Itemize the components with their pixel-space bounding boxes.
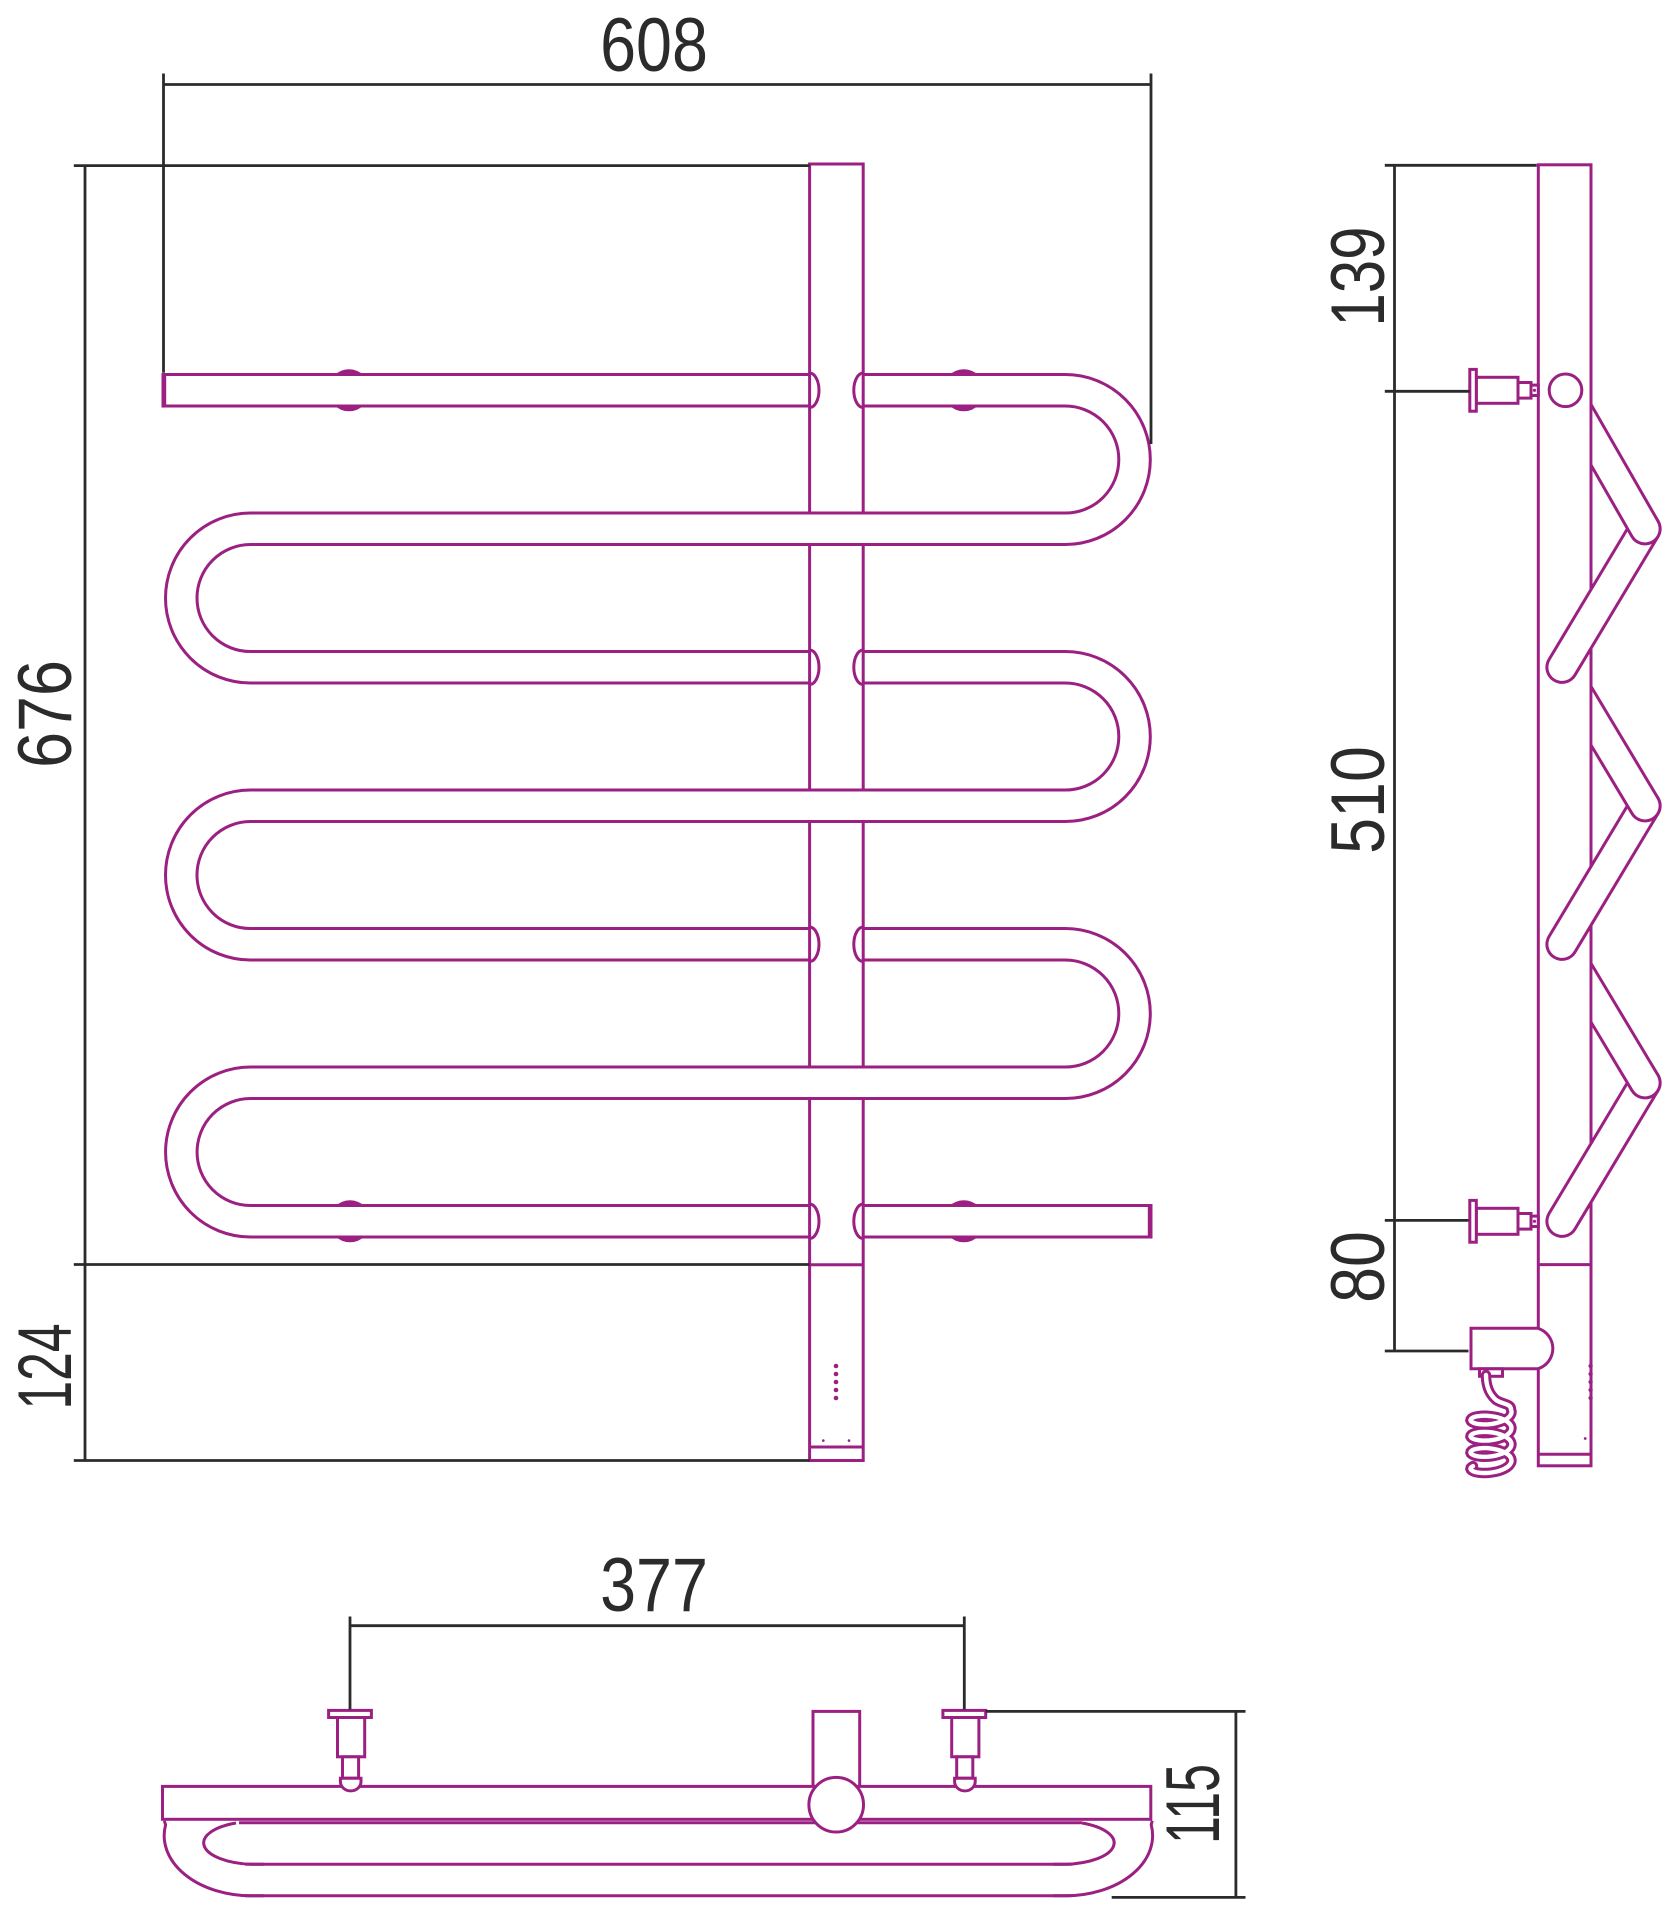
svg-text:510: 510 [1315, 746, 1400, 854]
svg-text:115: 115 [1151, 1764, 1236, 1844]
svg-text:80: 80 [1315, 1231, 1400, 1303]
svg-text:124: 124 [2, 1323, 87, 1409]
svg-text:139: 139 [1315, 226, 1400, 326]
svg-text:676: 676 [2, 660, 87, 768]
svg-text:608: 608 [600, 2, 708, 87]
svg-text:377: 377 [600, 1542, 708, 1627]
